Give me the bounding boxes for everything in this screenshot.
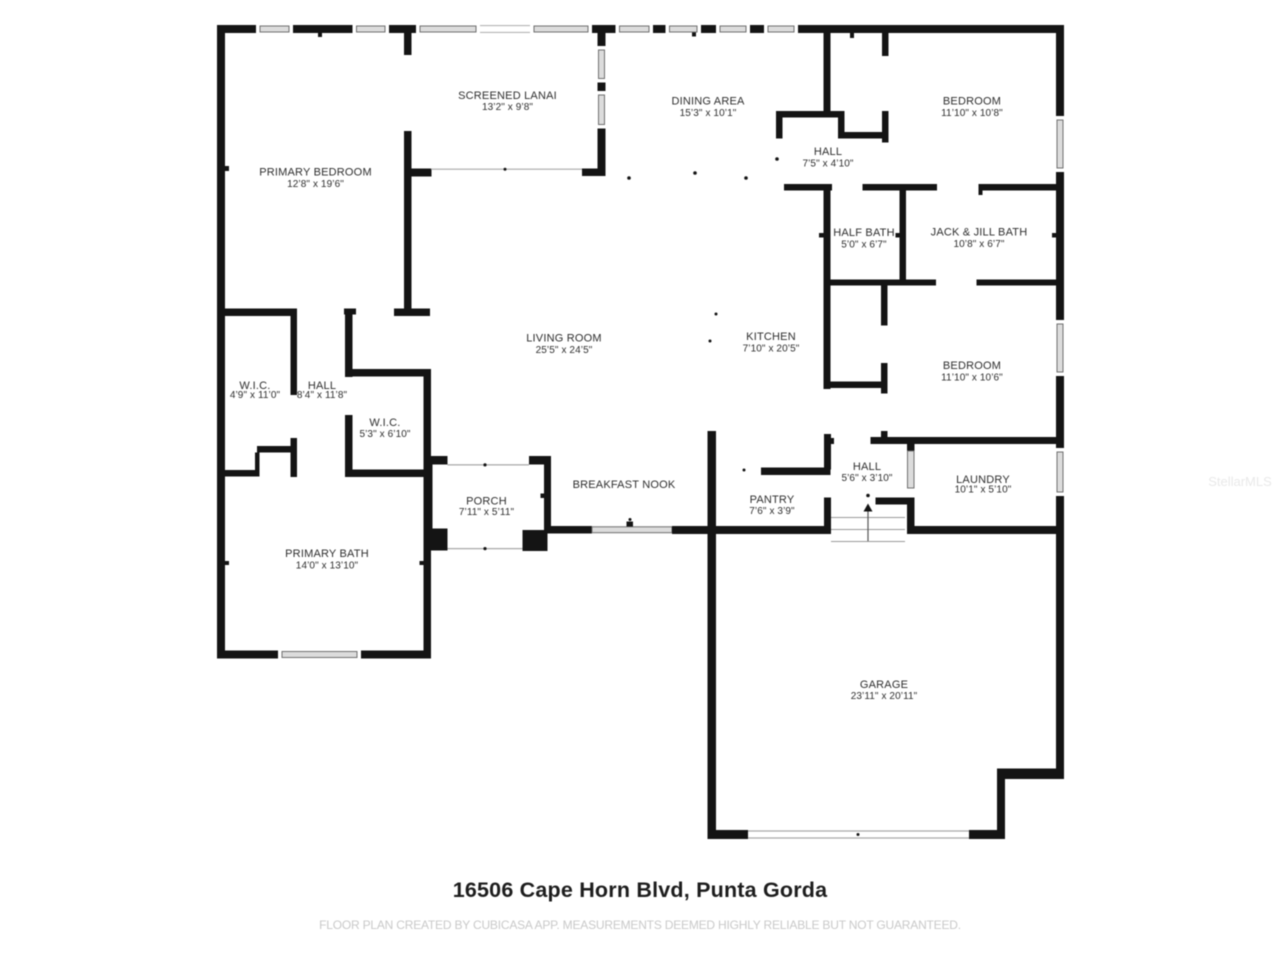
svg-text:7’6" x 3’9": 7’6" x 3’9" <box>749 506 795 517</box>
svg-text:BEDROOM: BEDROOM <box>943 96 1001 108</box>
svg-text:5’0" x 6’7": 5’0" x 6’7" <box>841 240 887 251</box>
svg-text:12’8" x 19’6": 12’8" x 19’6" <box>287 179 344 190</box>
svg-text:11’10" x 10’6": 11’10" x 10’6" <box>941 373 1003 384</box>
svg-text:25’5" x 24’5": 25’5" x 24’5" <box>536 345 593 356</box>
svg-text:GARAGE: GARAGE <box>860 679 908 691</box>
svg-text:StellarMLS: StellarMLS <box>1208 474 1272 489</box>
svg-text:PRIMARY BATH: PRIMARY BATH <box>285 548 369 560</box>
svg-text:PANTRY: PANTRY <box>750 494 795 506</box>
svg-text:DINING AREA: DINING AREA <box>671 96 745 108</box>
svg-text:HALF BATH: HALF BATH <box>833 227 895 239</box>
svg-text:15’3" x 10’1": 15’3" x 10’1" <box>680 108 737 119</box>
svg-text:5’6" x 3’10": 5’6" x 3’10" <box>841 473 892 484</box>
svg-text:PRIMARY BEDROOM: PRIMARY BEDROOM <box>259 167 372 179</box>
svg-text:5’3" x 6’10": 5’3" x 6’10" <box>359 429 410 440</box>
svg-text:14’0" x 13’10": 14’0" x 13’10" <box>296 561 359 572</box>
svg-text:23’11" x 20’11": 23’11" x 20’11" <box>851 691 918 702</box>
svg-text:7’10" x 20’5": 7’10" x 20’5" <box>743 344 800 355</box>
svg-text:FLOOR PLAN CREATED BY CUBICASA: FLOOR PLAN CREATED BY CUBICASA APP. MEAS… <box>319 918 961 932</box>
svg-text:BEDROOM: BEDROOM <box>943 360 1001 372</box>
svg-text:10’8" x 6’7": 10’8" x 6’7" <box>953 239 1004 250</box>
svg-text:W.I.C.: W.I.C. <box>369 417 400 429</box>
svg-text:BREAKFAST NOOK: BREAKFAST NOOK <box>573 479 676 491</box>
svg-text:KITCHEN: KITCHEN <box>746 331 796 343</box>
svg-text:SCREENED LANAI: SCREENED LANAI <box>458 90 557 102</box>
svg-text:JACK & JILL BATH: JACK & JILL BATH <box>931 227 1028 239</box>
svg-text:4’9" x 11’0": 4’9" x 11’0" <box>230 390 281 401</box>
svg-text:16506 Cape Horn Blvd, Punta Go: 16506 Cape Horn Blvd, Punta Gorda <box>453 878 828 902</box>
svg-text:7’11" x 5’11": 7’11" x 5’11" <box>459 507 515 518</box>
svg-text:10’1" x 5’10": 10’1" x 5’10" <box>955 485 1012 496</box>
svg-text:HALL: HALL <box>814 146 842 158</box>
svg-text:7’5" x 4’10": 7’5" x 4’10" <box>802 159 853 170</box>
svg-text:HALL: HALL <box>853 461 881 473</box>
svg-text:LIVING ROOM: LIVING ROOM <box>526 333 602 345</box>
svg-text:PORCH: PORCH <box>466 496 507 508</box>
svg-text:11’10" x 10’8": 11’10" x 10’8" <box>941 108 1003 119</box>
svg-text:13’2" x 9’8": 13’2" x 9’8" <box>482 102 533 113</box>
svg-text:8’4" x 11’8": 8’4" x 11’8" <box>297 390 348 401</box>
